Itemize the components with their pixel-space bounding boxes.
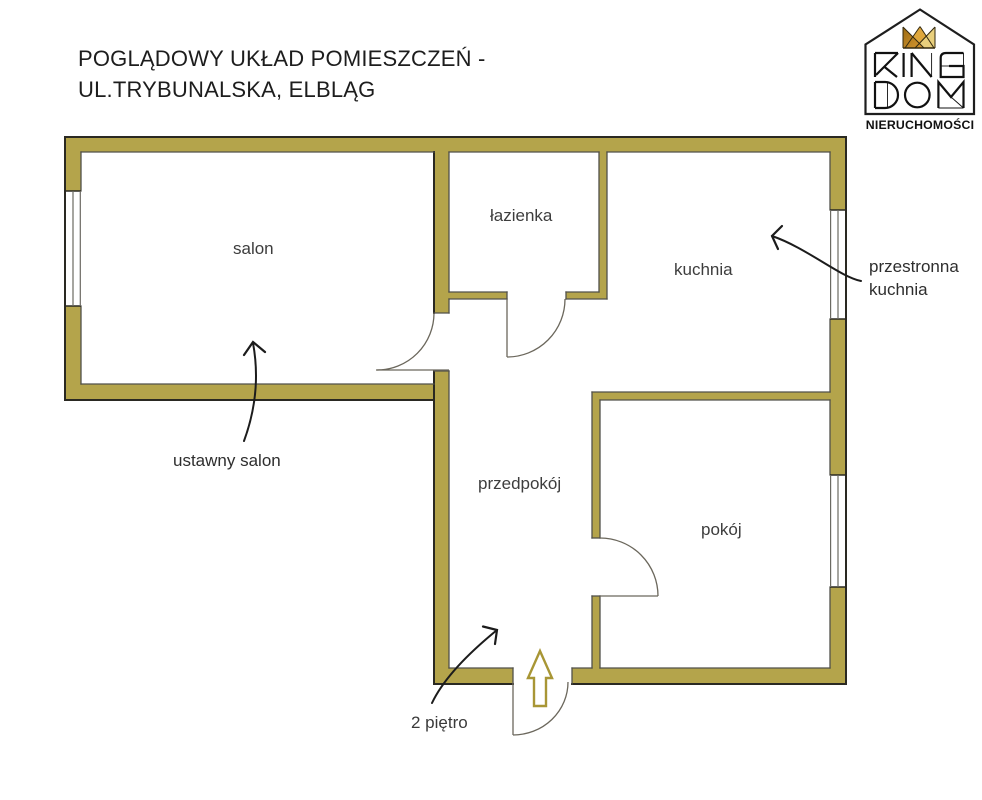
svg-text:NIERUCHOMOŚCI: NIERUCHOMOŚCI [866, 117, 975, 132]
